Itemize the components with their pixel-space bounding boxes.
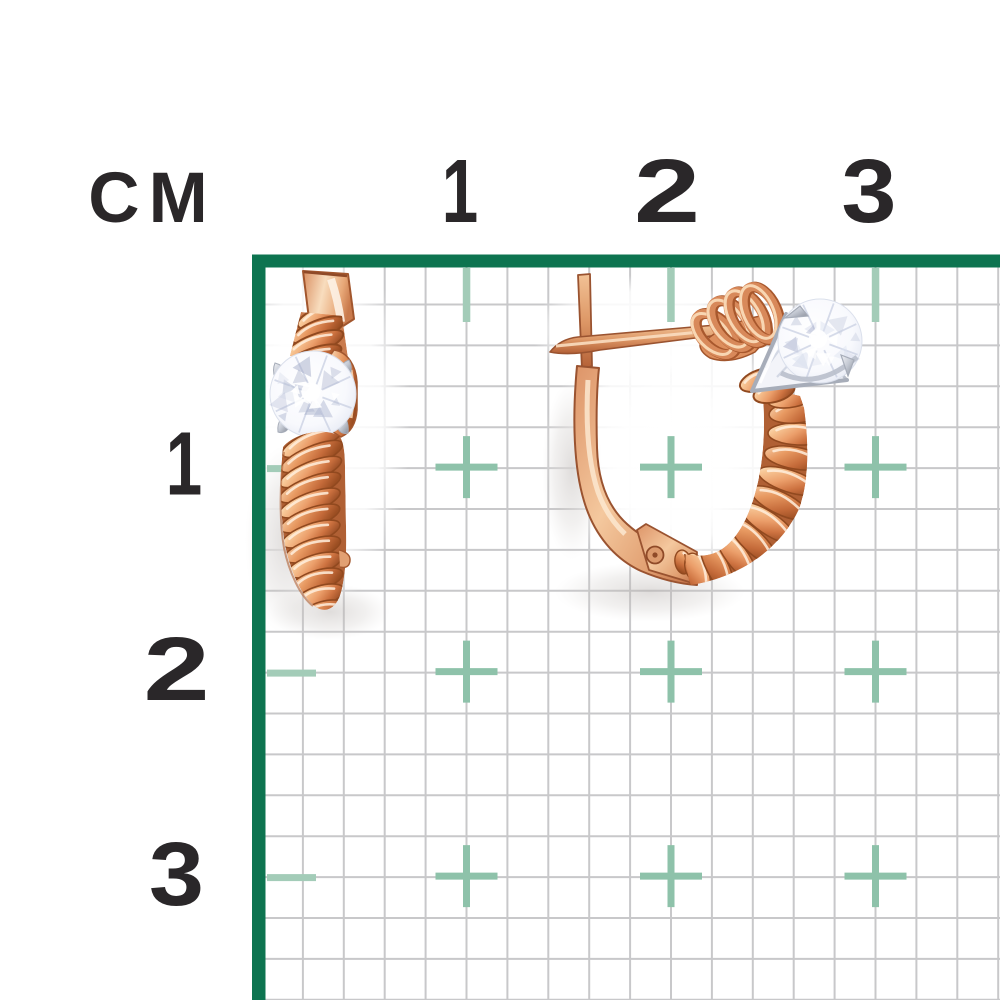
svg-text:2: 2 xyxy=(143,619,209,720)
svg-text:1: 1 xyxy=(166,413,202,514)
svg-text:3: 3 xyxy=(149,824,204,925)
svg-text:3: 3 xyxy=(841,141,896,242)
svg-text:2: 2 xyxy=(634,141,700,242)
svg-text:СМ: СМ xyxy=(88,159,217,238)
svg-text:1: 1 xyxy=(442,141,478,242)
